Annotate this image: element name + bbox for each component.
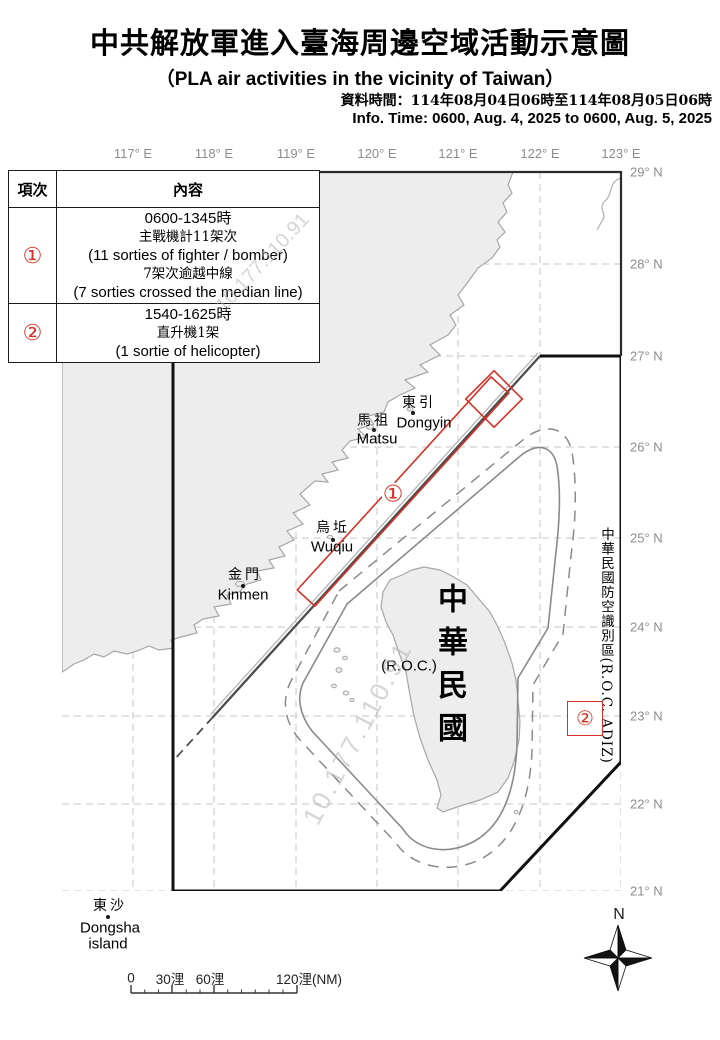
- label-wuqiu-zh: 烏坵: [316, 519, 350, 537]
- lat-label-21n: 21° N: [630, 884, 663, 899]
- table-row: ① 0600-1345時 主戰機計11架次 (11 sorties of fig…: [9, 208, 320, 304]
- row1-en-2: (7 sorties crossed the median line): [57, 283, 319, 302]
- row1-time: 0600-1345時: [57, 209, 319, 228]
- info-time-zh: 資料時間：114年08月04日06時至114年08月05日06時: [341, 90, 712, 110]
- label-kinmen-en: Kinmen: [218, 587, 269, 604]
- label-dongyin-en: Dongyin: [396, 415, 451, 432]
- lat-label-29n: 29° N: [630, 165, 663, 180]
- coast-fragment-ne: [597, 178, 621, 230]
- table-row: ② 1540-1625時 直升機1架 (1 sortie of helicopt…: [9, 304, 320, 363]
- lat-label-25n: 25° N: [630, 531, 663, 546]
- lon-label-123e: 123° E: [601, 146, 640, 161]
- row2-item-number: ②: [9, 304, 57, 363]
- compass-north-label: N: [613, 906, 625, 924]
- activity-marker-2-box: ②: [567, 701, 603, 736]
- lat-label-24n: 24° N: [630, 620, 663, 635]
- median-line-extension-dashed: [173, 717, 213, 761]
- lat-label-26n: 26° N: [630, 440, 663, 455]
- activity-marker-1: ①: [382, 483, 405, 506]
- label-dongyin-zh: 東引: [402, 394, 436, 412]
- scalebar-label-60: 60浬: [196, 968, 225, 988]
- label-dongsha-en2: island: [88, 936, 127, 953]
- info-time-en: Info. Time: 0600, Aug. 4, 2025 to 0600, …: [352, 110, 712, 127]
- label-wuqiu-en: Wuqiu: [311, 539, 353, 556]
- col-header-item: 項次: [9, 171, 57, 208]
- lon-label-122e: 122° E: [520, 146, 559, 161]
- label-matsu-en: Matsu: [357, 431, 398, 448]
- label-roc-vertical: 中華民國: [434, 583, 464, 755]
- col-header-content: 內容: [57, 171, 320, 208]
- compass-rose: [584, 925, 652, 991]
- lat-label-28n: 28° N: [630, 257, 663, 272]
- activity-table: 項次 內容 ① 0600-1345時 主戰機計11架次 (11 sorties …: [8, 170, 320, 363]
- activity-marker-2: ②: [576, 709, 594, 729]
- lat-label-27n: 27° N: [630, 349, 663, 364]
- scalebar-label-120: 120浬(NM): [276, 968, 342, 988]
- table-header-row: 項次 內容: [9, 171, 320, 208]
- row1-zh-2: 7架次逾越中線: [57, 265, 319, 283]
- row1-content: 0600-1345時 主戰機計11架次 (11 sorties of fight…: [57, 208, 320, 304]
- row2-zh-1: 直升機1架: [57, 324, 319, 342]
- row2-en-1: (1 sortie of helicopter): [57, 342, 319, 361]
- row2-content: 1540-1625時 直升機1架 (1 sortie of helicopter…: [57, 304, 320, 363]
- lon-label-118e: 118° E: [195, 146, 233, 161]
- lat-label-22n: 22° N: [630, 797, 663, 812]
- row2-time: 1540-1625時: [57, 305, 319, 324]
- lon-label-117e: 117° E: [114, 146, 152, 161]
- label-roc-paren: (R.O.C.): [381, 658, 437, 675]
- row1-item-number: ①: [9, 208, 57, 304]
- lon-label-119e: 119° E: [277, 146, 315, 161]
- label-matsu-zh: 馬祖: [357, 412, 391, 430]
- label-kinmen-zh: 金門: [228, 566, 262, 584]
- page-subtitle: （PLA air activities in the vicinity of T…: [0, 64, 720, 91]
- row1-zh-1: 主戰機計11架次: [57, 228, 319, 246]
- pla-activity-map-page: 中共解放軍進入臺海周邊空域活動示意圖 （PLA air activities i…: [0, 0, 720, 1040]
- lon-label-121e: 121° E: [438, 146, 477, 161]
- row1-en-1: (11 sorties of fighter / bomber): [57, 246, 319, 265]
- scalebar-label-30: 30浬: [156, 968, 185, 988]
- page-title: 中共解放軍進入臺海周邊空域活動示意圖: [0, 20, 720, 62]
- lat-label-23n: 23° N: [630, 709, 663, 724]
- label-dongsha-en1: Dongsha: [80, 920, 140, 937]
- lon-label-120e: 120° E: [357, 146, 396, 161]
- label-dongsha-zh: 東沙: [93, 897, 127, 915]
- scalebar-label-0: 0: [127, 971, 135, 986]
